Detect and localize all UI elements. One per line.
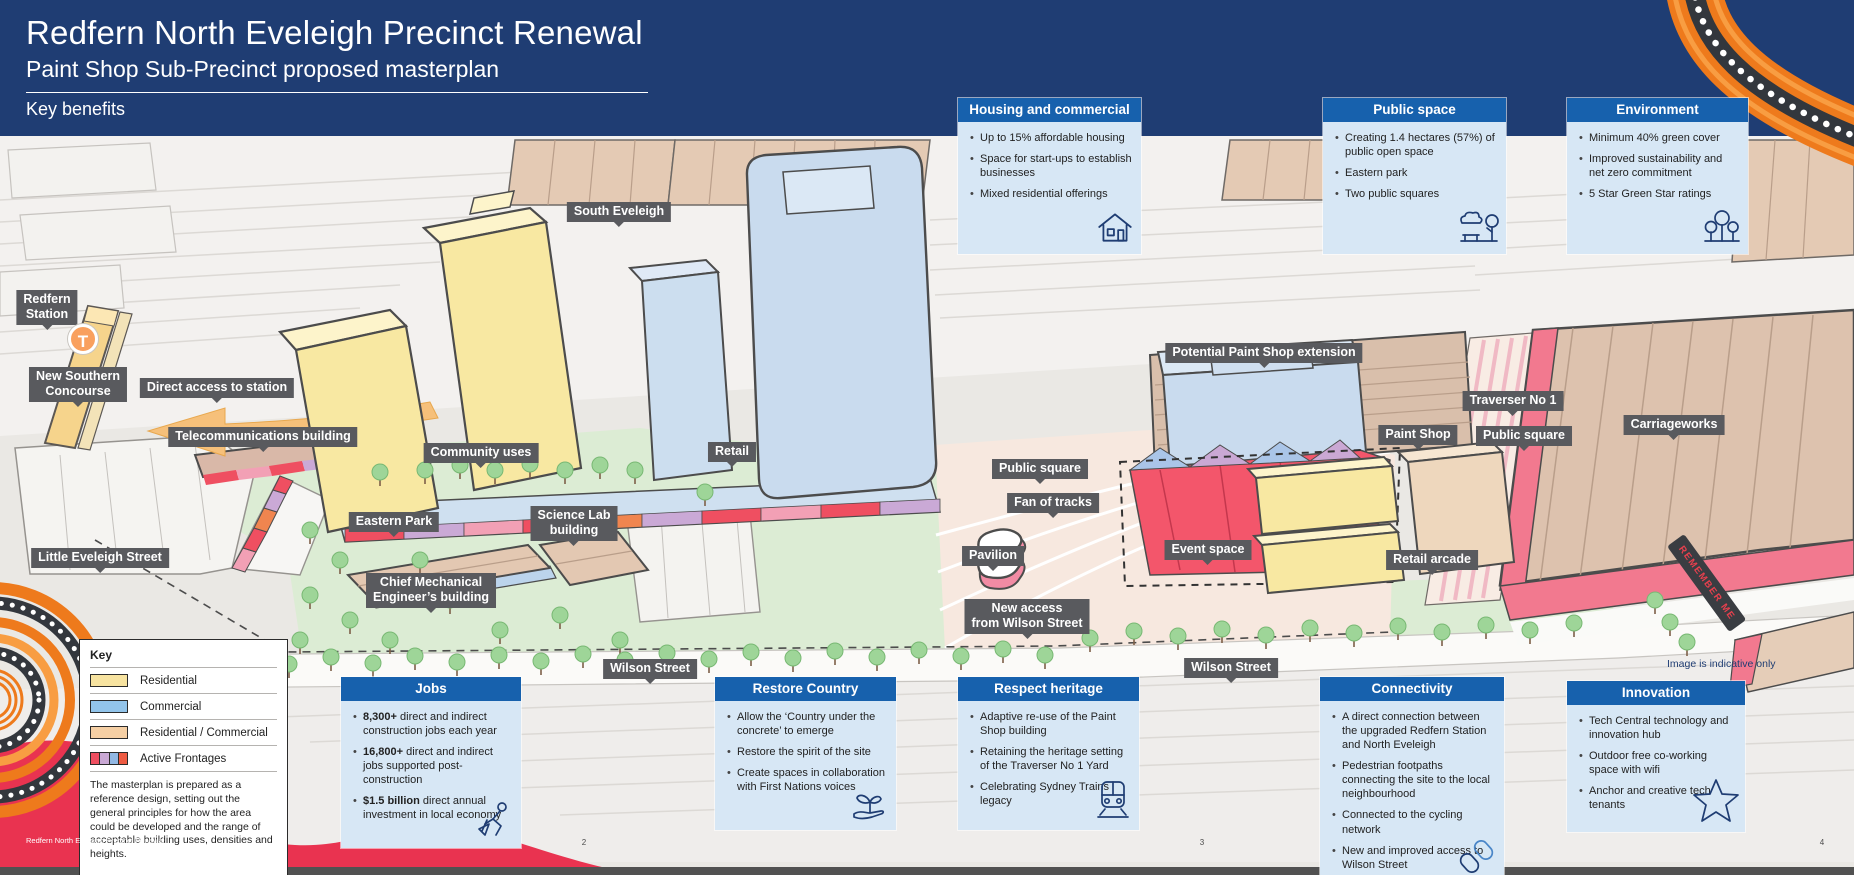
page-number-2: 2	[582, 838, 586, 847]
map-label-traverser-no-1: Traverser No 1	[1463, 391, 1564, 411]
card-title: Innovation	[1567, 681, 1745, 705]
house-icon	[1095, 210, 1135, 249]
card-title: Respect heritage	[958, 677, 1139, 701]
park-icon	[1456, 210, 1500, 249]
card-bullet: Creating 1.4 hectares (57%) of public op…	[1345, 131, 1498, 159]
header-rule	[26, 92, 648, 93]
card-bullet: Minimum 40% green cover	[1589, 131, 1740, 145]
map-label-redfern-station: Redfern Station	[16, 290, 77, 325]
map-label-fan-of-tracks: Fan of tracks	[1007, 493, 1099, 513]
map-label-paint-shop: Paint Shop	[1378, 425, 1457, 445]
map-label-community-uses: Community uses	[424, 443, 539, 463]
train-icon	[1093, 780, 1133, 825]
card-connectivity: Connectivity A direct connection between…	[1320, 677, 1504, 875]
masterplan-page: Redfern North Eveleigh Precinct Renewal …	[0, 0, 1854, 875]
legend-row-residential: Residential	[90, 668, 277, 694]
map-label-public-square-east: Public square	[1476, 426, 1572, 446]
map-label-telecommunications: Telecommunications building	[168, 427, 357, 447]
residential-commercial-swatch	[90, 726, 128, 739]
construction-worker-icon	[475, 800, 515, 843]
map-label-cme-building: Chief Mechanical Engineer’s building	[366, 573, 496, 608]
trees-icon	[1702, 208, 1742, 249]
card-title: Environment	[1567, 98, 1748, 122]
map-label-event-space: Event space	[1165, 540, 1252, 560]
card-title: Connectivity	[1320, 677, 1504, 701]
legend-row-active-frontages: Active Frontages	[90, 746, 277, 772]
map-label-new-southern-concourse: New Southern Concourse	[29, 367, 127, 402]
active-frontages-swatch	[90, 752, 128, 765]
map-label-retail-arcade: Retail arcade	[1386, 550, 1478, 570]
indicative-note: Image is indicative only	[1667, 658, 1776, 670]
card-bullet: Retaining the heritage setting of the Tr…	[980, 745, 1131, 773]
card-title: Restore Country	[715, 677, 896, 701]
card-restore-country: Restore Country Allow the ‘Country under…	[715, 677, 896, 830]
card-title: Jobs	[341, 677, 521, 701]
map-label-wilson-street-east: Wilson Street	[1184, 658, 1278, 678]
card-environment: Environment Minimum 40% green cover Impr…	[1567, 98, 1748, 254]
card-jobs: Jobs 8,300+ direct and indirect construc…	[341, 677, 521, 848]
card-housing-and-commercial: Housing and commercial Up to 15% afforda…	[958, 98, 1141, 254]
map-label-carriageworks: Carriageworks	[1624, 415, 1725, 435]
map-label-little-eveleigh-street: Little Eveleigh Street	[31, 548, 169, 568]
map-label-retail: Retail	[708, 442, 756, 462]
page-number-4: 4	[1820, 838, 1824, 847]
map-label-south-eveleigh: South Eveleigh	[567, 202, 671, 222]
page-number-3: 3	[1200, 838, 1204, 847]
map-label-pavilion: Pavilion	[962, 546, 1024, 566]
map-label-science-lab: Science Lab building	[531, 506, 618, 541]
card-public-space: Public space Creating 1.4 hectares (57%)…	[1323, 98, 1506, 254]
card-bullet: Connected to the cycling network	[1342, 808, 1496, 836]
card-bullet: Pedestrian footpaths connecting the site…	[1342, 759, 1496, 801]
train-station-icon: T	[68, 324, 98, 354]
card-title: Public space	[1323, 98, 1506, 122]
card-bullet: Space for start-ups to establish busines…	[980, 152, 1133, 180]
map-label-eastern-park: Eastern Park	[349, 512, 439, 532]
commercial-swatch	[90, 700, 128, 713]
map-label-direct-access: Direct access to station	[140, 378, 294, 398]
card-bullet: Improved sustainability and net zero com…	[1589, 152, 1740, 180]
legend-row-residential-commercial: Residential / Commercial	[90, 720, 277, 746]
card-innovation: Innovation Tech Central technology and i…	[1567, 681, 1745, 832]
card-bullet: Two public squares	[1345, 187, 1498, 201]
legend-title: Key	[90, 648, 277, 668]
map-label-paint-shop-extension: Potential Paint Shop extension	[1165, 343, 1362, 363]
legend-note: The masterplan is prepared as a referenc…	[90, 779, 277, 862]
map-label-new-access: New access from Wilson Street	[964, 599, 1089, 634]
card-bullet: A direct connection between the upgraded…	[1342, 710, 1496, 752]
card-bullet: Allow the ‘Country under the concrete’ t…	[737, 710, 888, 738]
star-icon	[1693, 778, 1739, 827]
card-title: Housing and commercial	[958, 98, 1141, 122]
commercial-tower-large	[747, 147, 936, 498]
card-bullet: Adaptive re-use of the Paint Shop buildi…	[980, 710, 1131, 738]
card-bullet: 8,300+ direct and indirect construction …	[363, 710, 513, 738]
card-bullet: Eastern park	[1345, 166, 1498, 180]
map-label-wilson-street-west: Wilson Street	[603, 659, 697, 679]
chain-links-icon	[1456, 837, 1498, 875]
card-bullet: Up to 15% affordable housing	[980, 131, 1133, 145]
card-bullet: Outdoor free co-working space with wifi	[1589, 749, 1737, 777]
card-bullet: 5 Star Green Star ratings	[1589, 187, 1740, 201]
card-bullet: Restore the spirit of the site	[737, 745, 888, 759]
residential-swatch	[90, 674, 128, 687]
card-bullet: Tech Central technology and innovation h…	[1589, 714, 1737, 742]
footer-brand: Redfern North Eveleigh Precinct Renewal	[26, 836, 164, 845]
card-respect-heritage: Respect heritage Adaptive re-use of the …	[958, 677, 1139, 830]
map-label-public-square-west: Public square	[992, 459, 1088, 479]
card-bullet: Mixed residential offerings	[980, 187, 1133, 201]
legend-row-commercial: Commercial	[90, 694, 277, 720]
seedling-hand-icon	[848, 786, 890, 825]
card-bullet: 16,800+ direct and indirect jobs support…	[363, 745, 513, 787]
